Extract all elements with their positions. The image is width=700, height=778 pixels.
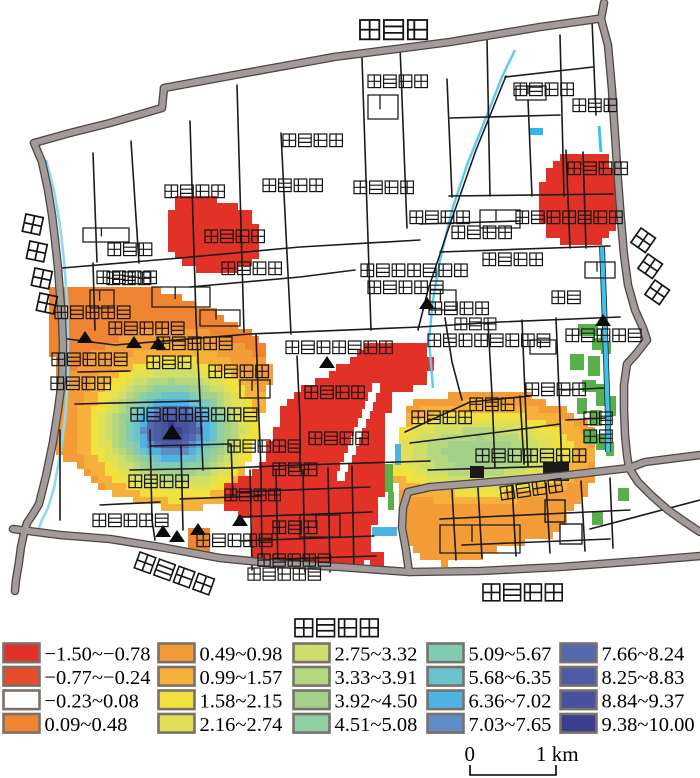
svg-text:2.75~3.32: 2.75~3.32	[335, 644, 418, 666]
svg-text:5.09~5.67: 5.09~5.67	[469, 644, 552, 666]
svg-text:5.68~6.35: 5.68~6.35	[469, 667, 552, 689]
svg-text:0.49~0.98: 0.49~0.98	[200, 644, 283, 666]
svg-text:1 km: 1 km	[536, 742, 579, 766]
svg-text:9.38~10.00: 9.38~10.00	[602, 714, 695, 736]
svg-text:3.92~4.50: 3.92~4.50	[335, 691, 418, 713]
svg-text:8.25~8.83: 8.25~8.83	[602, 667, 685, 689]
svg-text:0: 0	[465, 742, 476, 766]
svg-text:6.36~7.02: 6.36~7.02	[469, 691, 552, 713]
svg-text:8.84~9.37: 8.84~9.37	[602, 691, 685, 713]
svg-text:2.16~2.74: 2.16~2.74	[200, 714, 283, 736]
svg-text:7.66~8.24: 7.66~8.24	[602, 644, 685, 666]
svg-text:0.99~1.57: 0.99~1.57	[200, 667, 283, 689]
svg-text:0.09~0.48: 0.09~0.48	[45, 714, 128, 736]
svg-text:1.58~2.15: 1.58~2.15	[200, 691, 283, 713]
svg-text:−0.23~0.08: −0.23~0.08	[45, 691, 139, 713]
svg-text:−1.50~−0.78: −1.50~−0.78	[45, 644, 151, 666]
svg-text:−0.77~−0.24: −0.77~−0.24	[45, 667, 151, 689]
svg-text:7.03~7.65: 7.03~7.65	[469, 714, 552, 736]
svg-text:3.33~3.91: 3.33~3.91	[335, 667, 418, 689]
svg-text:4.51~5.08: 4.51~5.08	[335, 714, 418, 736]
